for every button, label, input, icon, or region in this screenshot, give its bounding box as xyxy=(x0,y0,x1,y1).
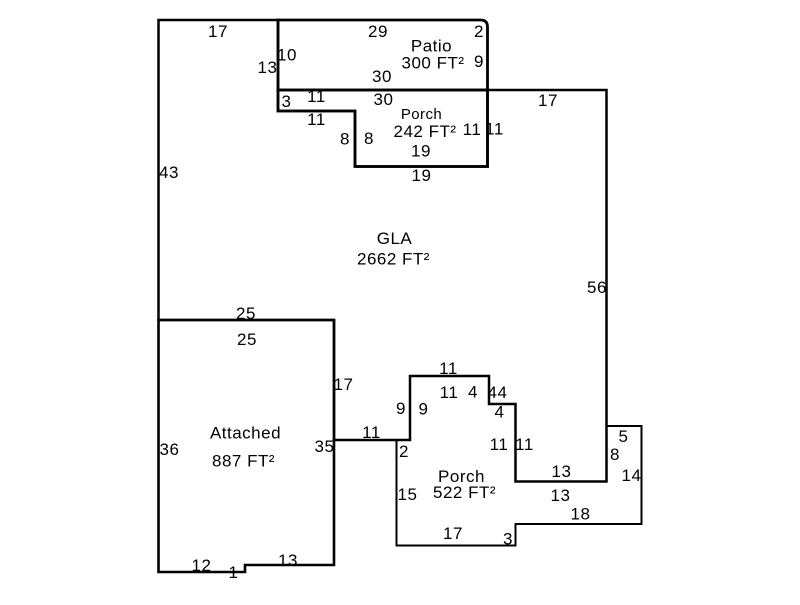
svg-text:9: 9 xyxy=(396,399,406,418)
svg-text:13: 13 xyxy=(278,551,298,570)
svg-text:Porch: Porch xyxy=(401,106,442,123)
svg-text:3: 3 xyxy=(282,92,292,111)
svg-text:11: 11 xyxy=(485,120,504,139)
svg-text:300 FT²: 300 FT² xyxy=(401,54,464,73)
svg-text:522 FT²: 522 FT² xyxy=(433,483,496,502)
svg-text:2662 FT²: 2662 FT² xyxy=(357,250,430,269)
svg-text:Attached: Attached xyxy=(210,424,281,443)
svg-text:43: 43 xyxy=(159,163,179,182)
svg-text:25: 25 xyxy=(237,330,257,349)
svg-text:17: 17 xyxy=(208,22,228,41)
svg-text:11: 11 xyxy=(307,87,326,106)
svg-text:9: 9 xyxy=(474,52,484,71)
svg-text:18: 18 xyxy=(571,505,591,524)
svg-text:13: 13 xyxy=(552,462,572,481)
svg-text:13: 13 xyxy=(551,486,571,505)
svg-text:11: 11 xyxy=(490,435,509,454)
svg-text:35: 35 xyxy=(315,437,335,456)
svg-text:11: 11 xyxy=(307,110,326,129)
svg-text:GLA: GLA xyxy=(377,229,413,248)
svg-text:19: 19 xyxy=(411,142,431,161)
svg-text:8: 8 xyxy=(610,445,620,464)
svg-text:8: 8 xyxy=(364,129,374,148)
svg-text:11: 11 xyxy=(362,423,381,442)
svg-text:15: 15 xyxy=(398,485,418,504)
svg-text:3: 3 xyxy=(503,530,513,549)
svg-text:1: 1 xyxy=(229,563,239,582)
svg-text:9: 9 xyxy=(419,400,429,419)
svg-text:11: 11 xyxy=(440,383,459,402)
svg-text:17: 17 xyxy=(538,91,558,110)
svg-text:14: 14 xyxy=(622,466,642,485)
svg-text:11: 11 xyxy=(515,435,534,454)
svg-text:44: 44 xyxy=(488,383,508,402)
svg-text:17: 17 xyxy=(334,375,354,394)
svg-text:11: 11 xyxy=(439,359,458,378)
svg-text:5: 5 xyxy=(619,427,629,446)
svg-text:13: 13 xyxy=(258,58,278,77)
svg-text:2: 2 xyxy=(474,22,484,41)
svg-text:10: 10 xyxy=(277,46,297,65)
svg-text:4: 4 xyxy=(495,403,505,422)
svg-text:29: 29 xyxy=(368,22,388,41)
svg-text:242 FT²: 242 FT² xyxy=(393,122,456,141)
svg-text:56: 56 xyxy=(587,278,607,297)
svg-text:11: 11 xyxy=(463,120,482,139)
svg-text:12: 12 xyxy=(192,556,212,575)
svg-text:25: 25 xyxy=(236,304,256,323)
svg-text:17: 17 xyxy=(443,524,463,543)
svg-text:887 FT²: 887 FT² xyxy=(212,452,275,471)
svg-text:30: 30 xyxy=(372,67,392,86)
svg-text:8: 8 xyxy=(340,130,350,149)
svg-text:4: 4 xyxy=(468,383,478,402)
svg-text:36: 36 xyxy=(160,440,180,459)
svg-text:2: 2 xyxy=(399,442,409,461)
svg-text:19: 19 xyxy=(412,166,432,185)
svg-text:30: 30 xyxy=(374,90,394,109)
